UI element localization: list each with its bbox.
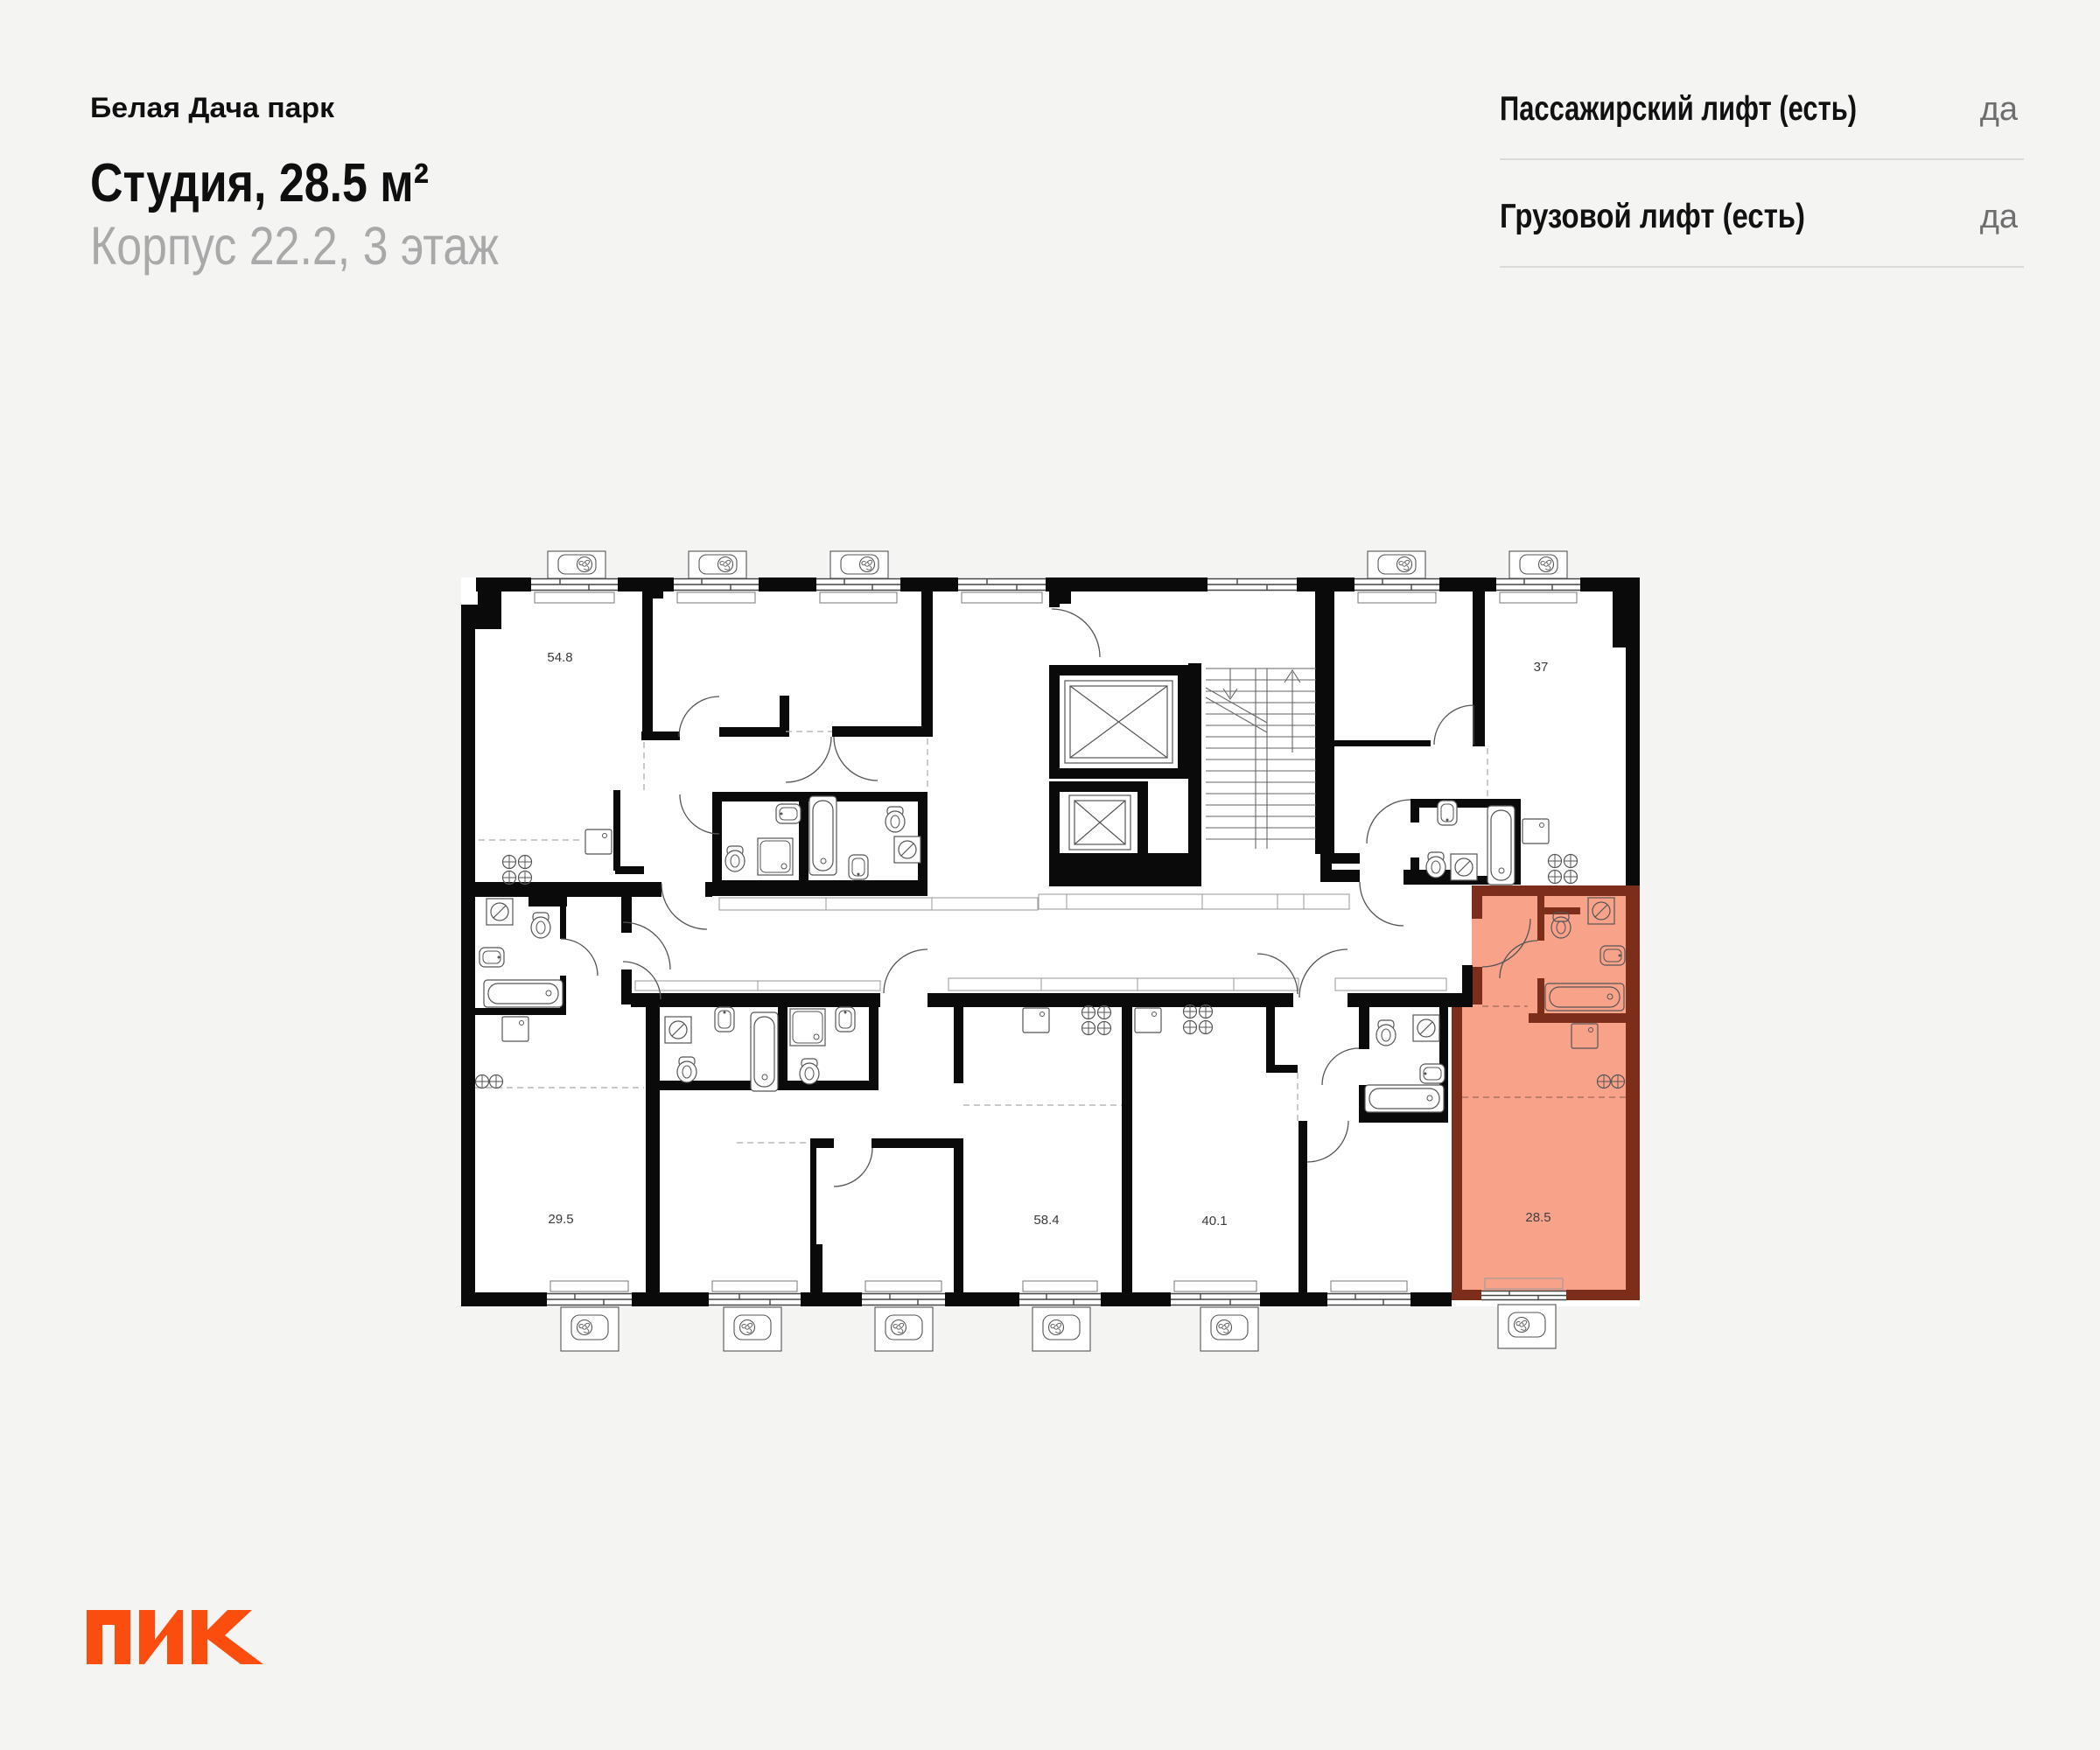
svg-text:37: 37 [1534,660,1549,675]
svg-text:58.4: 58.4 [1033,1213,1059,1228]
svg-text:54.8: 54.8 [547,650,572,665]
svg-text:40.1: 40.1 [1201,1214,1227,1228]
svg-text:28.5: 28.5 [1525,1210,1550,1225]
svg-text:29.5: 29.5 [548,1212,573,1227]
